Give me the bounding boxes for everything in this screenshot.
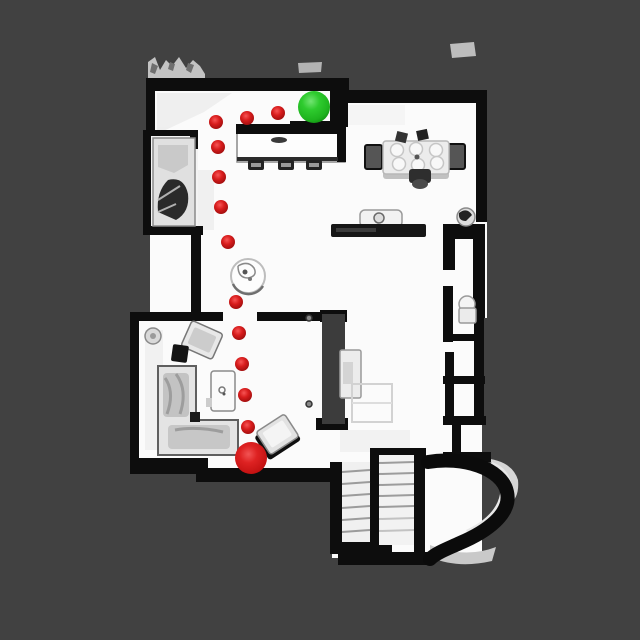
alcove-cabinet — [153, 138, 195, 226]
kitchen-island — [236, 121, 346, 170]
coffee-table — [206, 371, 235, 411]
path-dot — [271, 106, 285, 120]
path-dot — [235, 357, 249, 371]
path-dot — [229, 295, 243, 309]
dining-chair — [448, 144, 465, 169]
round-table — [231, 259, 265, 294]
dining-chair — [365, 145, 382, 169]
path-dot — [240, 111, 254, 125]
path-dot — [212, 170, 226, 184]
stool — [145, 328, 161, 344]
scan-noise-fragment — [298, 62, 322, 73]
toilet — [459, 296, 476, 323]
goal-marker[interactable] — [298, 91, 330, 123]
door-handle — [306, 315, 312, 321]
map-viewport[interactable] — [0, 0, 640, 640]
scan-noise-topright — [450, 42, 476, 58]
path-dot — [214, 200, 228, 214]
path-dot — [221, 235, 235, 249]
path-dot — [211, 140, 225, 154]
path-dot — [232, 326, 246, 340]
agent-marker[interactable] — [235, 442, 267, 474]
floorplan-map[interactable] — [0, 0, 640, 640]
path-dot — [241, 420, 255, 434]
path-dot — [209, 115, 223, 129]
side-table — [171, 344, 189, 363]
door-handle — [306, 401, 312, 407]
sink — [457, 208, 475, 226]
path-dot — [238, 388, 252, 402]
